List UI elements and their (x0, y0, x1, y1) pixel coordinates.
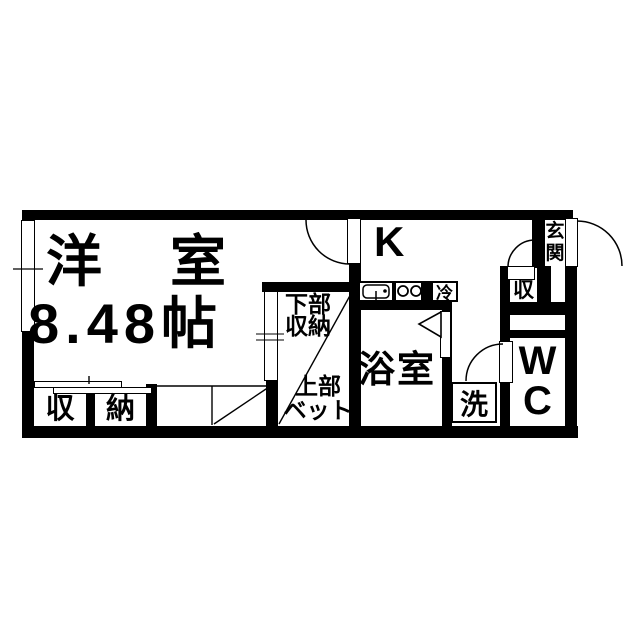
right-outer-wall (565, 266, 577, 438)
bathroom-label: 浴室 (358, 351, 436, 388)
room-size-label: 8.48帖 (28, 296, 223, 352)
closet-label-left: 収 (34, 392, 86, 426)
bed-panel (264, 291, 278, 381)
closet-label-right: 納 (95, 392, 146, 426)
bottom-wall (22, 426, 578, 438)
top-wall (22, 210, 573, 220)
genkan-left-wall (532, 210, 545, 268)
stove-unit (394, 281, 423, 302)
entrance-door-leaf (565, 218, 578, 267)
upper-bed-label-1: 上部 (280, 375, 356, 398)
bathroom-door-leaf (440, 311, 451, 358)
washer-box: 洗 (451, 382, 497, 423)
bathroom-door-triangle-icon (419, 312, 441, 337)
under-bed-storage-label: 下部 収納 (281, 293, 335, 337)
kitchen-label: K (374, 221, 404, 263)
floor-plan: 冷 洗 洋 室 8.48帖 K 下部 収納 上部 ベット 浴室 収 納 玄 関 … (0, 0, 639, 640)
western-room-label: 洋 室 (46, 234, 232, 290)
hallway-door-arc (508, 240, 535, 267)
hall-storage-label: 収 (510, 278, 537, 302)
western-room-door-leaf (347, 218, 361, 264)
step-diagonal-line (214, 387, 269, 424)
upper-bed-label-2: ベット (278, 399, 358, 422)
wc-label: W C (510, 338, 565, 424)
fridge-label: 冷 (436, 279, 453, 304)
sink-unit (358, 281, 394, 302)
entrance-door-arc (577, 221, 622, 266)
fridge-box: 冷 (431, 281, 458, 302)
entrance-label: 玄 関 (545, 221, 565, 265)
washer-label: 洗 (460, 383, 488, 423)
storage-right-wall (537, 266, 551, 306)
wc-door-arc (466, 344, 503, 381)
storage-bottom-wall (510, 302, 565, 315)
closet-divider-wall (86, 390, 95, 426)
western-room-door-arc (306, 220, 350, 264)
counter-stub-wall (423, 281, 431, 302)
wc-top-wall (500, 330, 577, 338)
